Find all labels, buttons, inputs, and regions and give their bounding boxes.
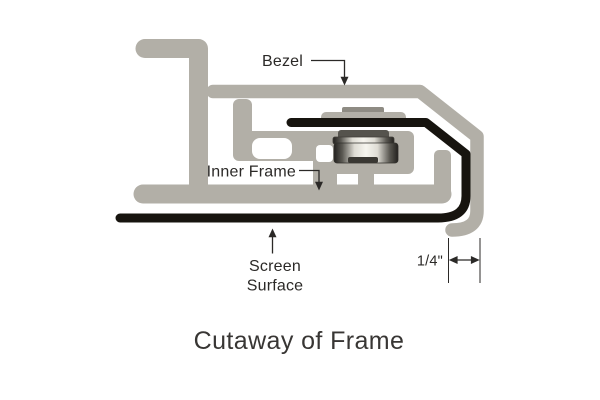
cutaway-of-frame-figure: Bezel Inner Frame Screen Surface 1/4" Cu… <box>0 0 600 400</box>
figure-caption: Cutaway of Frame <box>194 327 405 355</box>
bezel-arrowhead <box>341 77 349 86</box>
inner-frame-label: Inner Frame <box>207 164 296 181</box>
cutaway-diagram: Bezel Inner Frame Screen Surface 1/4" Cu… <box>0 0 600 400</box>
slot-nut-left <box>316 145 333 162</box>
bezel-leader-line <box>311 61 345 78</box>
bezel-label: Bezel <box>262 53 303 70</box>
slot-left <box>252 138 292 159</box>
dimension-label: 1/4" <box>417 254 443 270</box>
screen-fastener <box>333 130 398 163</box>
dimension-arrowhead-left <box>449 256 458 264</box>
screen-surface-label-line1: Screen <box>249 258 301 275</box>
screen-surface-label-line2: Surface <box>247 278 304 295</box>
fastener-nut-base <box>348 157 378 163</box>
screen-surface-arrowhead <box>269 229 277 238</box>
dimension-arrowhead-right <box>471 256 480 264</box>
